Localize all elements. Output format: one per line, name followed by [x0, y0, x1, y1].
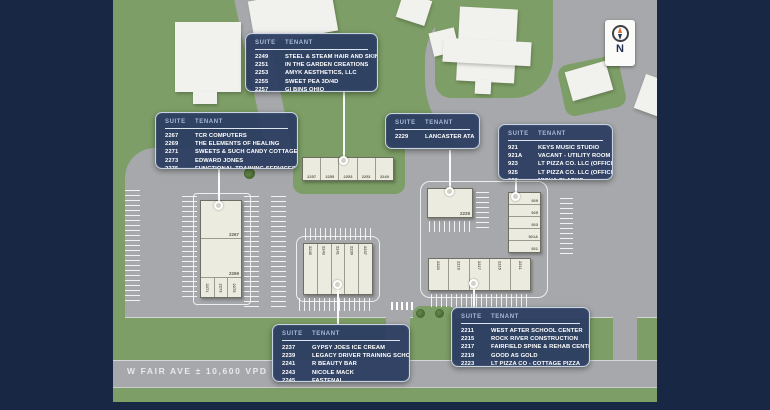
unit-label: 923	[531, 222, 538, 227]
callout-south-east-retail: SUITETENANT 2211WEST AFTER SCHOOL CENTER…	[451, 307, 590, 367]
unit-label: 2271	[205, 283, 210, 292]
building-south-strip: 2223 2219 2217 2215 2211	[428, 258, 531, 291]
unit-2269: 2269	[201, 239, 241, 278]
tenant-name: GI BINS OHIO	[285, 86, 368, 92]
driveway-east	[613, 300, 637, 362]
tenant-name: STEEL & STEAM HAIR AND SKIN	[285, 53, 378, 61]
tenant-name: R BEAUTY BAR	[312, 360, 400, 368]
suite-number: 2253	[255, 69, 285, 77]
unit-label: 2217	[477, 261, 482, 270]
tenant-row: 2271SWEETS & SUCH CANDY COTTAGE	[156, 148, 297, 156]
compass-letter: N	[616, 43, 624, 55]
site-plan-map: 2267 2269 2271 2273 2275 2257 2255 2253 …	[113, 0, 657, 402]
tenant-row: 921KEYS MUSIC STUDIO	[499, 144, 612, 152]
unit-2255: 2255	[321, 158, 339, 180]
unit-2243: 2243	[318, 244, 332, 294]
divider	[395, 129, 470, 130]
tree-icon	[244, 168, 255, 179]
tenant-name: AMYK AESTHETICS, LLC	[285, 69, 368, 77]
tenant-name: EDWARD JONES	[195, 157, 288, 165]
suite-number: 2243	[282, 369, 312, 377]
tenant-row: 2219GOOD AS GOLD	[452, 352, 589, 360]
tenant-name: THE ELEMENTS OF HEALING	[195, 140, 288, 148]
tenant-name: KEYS MUSIC STUDIO	[538, 144, 603, 152]
leader-marker-icon	[511, 192, 520, 201]
suite-header: SUITE	[395, 120, 425, 126]
parking-stalls	[560, 198, 573, 258]
tenant-name: FUNCTIONAL TRAINING SERVICES	[195, 165, 296, 169]
suite-number: 2237	[282, 344, 312, 352]
tenant-name: TCR COMPUTERS	[195, 132, 288, 140]
tenant-name: LT PIZZA CO. LLC (OFFICE)	[538, 169, 613, 177]
tenant-row: 2257GI BINS OHIO	[246, 86, 377, 92]
tenant-row: 2241R BEAUTY BAR	[273, 360, 409, 368]
tenant-row: 2251IN THE GARDEN CREATIONS	[246, 61, 377, 69]
unit-label: 929	[531, 198, 538, 203]
tenant-name: LT PIZZA CO. LLC (OFFICE)	[538, 160, 613, 168]
divider	[282, 340, 400, 341]
tenant-row: 2273EDWARD JONES	[156, 157, 297, 165]
unit-921: 921	[509, 241, 540, 252]
tenant-row: 2269THE ELEMENTS OF HEALING	[156, 140, 297, 148]
suite-number: 2219	[461, 352, 491, 360]
tenant-name: LANCASTER ATA	[425, 133, 475, 141]
suite-header: SUITE	[508, 131, 538, 137]
unit-2215: 2215	[490, 259, 510, 290]
tenant-header: TENANT	[285, 40, 368, 46]
suite-number: 2215	[461, 335, 491, 343]
tree-icon	[416, 309, 425, 318]
unit-label: 2275	[232, 283, 237, 292]
unit-label: 2237	[363, 246, 368, 255]
tenant-header: TENANT	[425, 120, 470, 126]
suite-number: 2245	[282, 377, 312, 382]
unit-2249: 2249	[376, 158, 393, 180]
unit-2211: 2211	[511, 259, 530, 290]
compass-needle-south	[618, 34, 622, 40]
parking-stalls	[271, 196, 286, 308]
crosswalk	[391, 302, 413, 310]
tenant-row: 2249STEEL & STEAM HAIR AND SKIN	[246, 53, 377, 61]
tenant-name: FASTENAL	[312, 377, 400, 382]
church-wing	[442, 38, 531, 67]
callout-header: SUITETENANT	[246, 34, 377, 48]
suite-header: SUITE	[165, 119, 195, 125]
tenant-header: TENANT	[491, 314, 580, 320]
unit-2275: 2275	[228, 278, 241, 297]
tenant-name: NICOLE MACK	[312, 369, 400, 377]
callout-north-retail: SUITETENANT 2249STEEL & STEAM HAIR AND S…	[245, 33, 378, 92]
suite-number: 2255	[255, 78, 285, 86]
callout-header: SUITETENANT	[499, 125, 612, 139]
leader-line	[337, 289, 339, 324]
tenant-name: GYPSY JOES ICE CREAM	[312, 344, 400, 352]
leader-line	[449, 150, 451, 189]
tenant-row: 929MISHA CLARKE	[499, 177, 612, 180]
leader-marker-icon	[214, 201, 223, 210]
tenant-name: SWEETS & SUCH CANDY COTTAGE	[195, 148, 298, 156]
unit-label: 2239	[349, 246, 354, 255]
tenant-name: VACANT - UTILITY ROOM	[538, 152, 610, 160]
callout-west-retail: SUITETENANT 2267TCR COMPUTERS 2269THE EL…	[155, 112, 298, 169]
house-building	[175, 22, 241, 92]
suite-number: 2273	[165, 157, 195, 165]
callout-header: SUITETENANT	[386, 114, 479, 128]
tenant-name: IN THE GARDEN CREATIONS	[285, 61, 368, 69]
leader-line	[473, 288, 475, 307]
building-west: 2267 2269 2271 2273 2275	[200, 200, 242, 298]
unit-2273: 2273	[215, 278, 229, 297]
suite-number: 923	[508, 160, 538, 168]
unit-2223: 2223	[429, 259, 449, 290]
unit-2219: 2219	[449, 259, 469, 290]
suite-number: 2275	[165, 165, 195, 169]
tenant-name: GOOD AS GOLD	[491, 352, 580, 360]
unit-label: 2257	[303, 174, 320, 179]
house-building	[396, 0, 433, 26]
suite-number: 925	[508, 169, 538, 177]
tenant-row: 2223LT PIZZA CO - COTTAGE PIZZA	[452, 360, 589, 367]
suite-number: 2239	[282, 352, 312, 360]
site-plan-frame: 2267 2269 2271 2273 2275 2257 2255 2253 …	[0, 0, 770, 410]
suite-number: 929	[508, 177, 538, 180]
unit-921A: 921A	[509, 229, 540, 241]
unit-label: 921A	[528, 234, 538, 239]
unit-label: 2273	[219, 283, 224, 292]
compass-needle-north	[618, 27, 622, 33]
unit-label: 2241	[335, 246, 340, 255]
unit-2245: 2245	[304, 244, 318, 294]
unit-2257: 2257	[303, 158, 321, 180]
divider	[461, 323, 580, 324]
tenant-row: 925LT PIZZA CO. LLC (OFFICE)	[499, 169, 612, 177]
suite-number: 2251	[255, 61, 285, 69]
tenant-row: 2243NICOLE MACK	[273, 369, 409, 377]
suite-number: 2229	[395, 133, 425, 141]
suite-header: SUITE	[461, 314, 491, 320]
unit-label: 921	[531, 246, 538, 251]
suite-number: 921A	[508, 152, 538, 160]
suite-number: 921	[508, 144, 538, 152]
units-small-row: 2271 2273 2275	[201, 278, 241, 297]
tenant-row: 2237GYPSY JOES ICE CREAM	[273, 344, 409, 352]
suite-number: 2269	[165, 140, 195, 148]
house-building	[193, 92, 217, 104]
unit-label: 2253	[339, 174, 356, 179]
callout-header: SUITETENANT	[273, 325, 409, 339]
building-east-strip: 929 925 923 921A 921	[508, 192, 541, 253]
suite-number: 2271	[165, 148, 195, 156]
unit-label: 2243	[322, 246, 327, 255]
suite-number: 2257	[255, 86, 285, 92]
unit-2251: 2251	[358, 158, 376, 180]
leader-marker-icon	[339, 156, 348, 165]
suite-header: SUITE	[255, 40, 285, 46]
suite-number: 2217	[461, 343, 491, 351]
suite-number: 2211	[461, 327, 491, 335]
tenant-row: 2245FASTENAL	[273, 377, 409, 382]
leader-marker-icon	[469, 279, 478, 288]
tenant-name: FAIRFIELD SPINE & REHAB CENTER	[491, 343, 590, 351]
unit-925: 925	[509, 205, 540, 217]
callout-south-center-retail: SUITETENANT 2237GYPSY JOES ICE CREAM 223…	[272, 324, 410, 382]
tenant-header: TENANT	[538, 131, 603, 137]
leader-line	[218, 169, 220, 203]
tenant-row: 2275FUNCTIONAL TRAINING SERVICES	[156, 165, 297, 169]
suite-header: SUITE	[282, 331, 312, 337]
tenant-row: 921AVACANT - UTILITY ROOM	[499, 152, 612, 160]
unit-label: 2211	[518, 261, 523, 270]
tenant-name: MISHA CLARKE	[538, 177, 603, 180]
tenant-header: TENANT	[312, 331, 400, 337]
unit-label: 2267	[229, 232, 239, 237]
tenant-row: 2217FAIRFIELD SPINE & REHAB CENTER	[452, 343, 589, 351]
tenant-row: 923LT PIZZA CO. LLC (OFFICE)	[499, 160, 612, 168]
suite-number: 2249	[255, 53, 285, 61]
unit-label: 2269	[229, 271, 239, 276]
unit-label: 2255	[321, 174, 338, 179]
unit-2237: 2237	[359, 244, 372, 294]
divider	[508, 140, 603, 141]
unit-label: 2229	[460, 211, 470, 216]
unit-label: 925	[531, 210, 538, 215]
callout-east-retail: SUITETENANT 921KEYS MUSIC STUDIO 921AVAC…	[498, 124, 613, 180]
divider	[165, 128, 288, 129]
tenant-row: 2239LEGACY DRIVER TRAINING SCHOOL	[273, 352, 409, 360]
tenant-row: 2253AMYK AESTHETICS, LLC	[246, 69, 377, 77]
unit-2271: 2271	[201, 278, 215, 297]
divider	[255, 49, 368, 50]
building-north-strip: 2257 2255 2253 2251 2249	[302, 157, 394, 181]
unit-label: 2251	[358, 174, 375, 179]
compass-ring-icon	[612, 25, 629, 42]
callout-center-single: SUITETENANT 2229LANCASTER ATA	[385, 113, 480, 149]
unit-label: 2223	[436, 261, 441, 270]
leader-marker-icon	[333, 280, 342, 289]
tenant-header: TENANT	[195, 119, 288, 125]
road-label: W FAIR AVE ± 10,600 VPD	[127, 366, 268, 376]
unit-label: 2245	[308, 246, 313, 255]
tenant-row: 2211WEST AFTER SCHOOL CENTER	[452, 327, 589, 335]
callout-header: SUITETENANT	[452, 308, 589, 322]
leader-line	[343, 92, 345, 158]
compass-north-icon: N	[605, 20, 635, 66]
tenant-row: 2215ROCK RIVER CONSTRUCTION	[452, 335, 589, 343]
tenant-name: WEST AFTER SCHOOL CENTER	[491, 327, 583, 335]
tenant-row: 2229LANCASTER ATA	[386, 133, 479, 141]
tenant-name: LEGACY DRIVER TRAINING SCHOOL	[312, 352, 410, 360]
suite-number: 2267	[165, 132, 195, 140]
leader-marker-icon	[445, 187, 454, 196]
unit-2239: 2239	[345, 244, 359, 294]
tree-icon	[435, 309, 444, 318]
tenant-row: 2267TCR COMPUTERS	[156, 132, 297, 140]
tenant-name: LT PIZZA CO - COTTAGE PIZZA	[491, 360, 580, 367]
unit-label: 2215	[497, 261, 502, 270]
callout-header: SUITETENANT	[156, 113, 297, 127]
tenant-name: SWEET PEA 3D/4D	[285, 78, 368, 86]
unit-923: 923	[509, 217, 540, 229]
suite-number: 2241	[282, 360, 312, 368]
tenant-name: ROCK RIVER CONSTRUCTION	[491, 335, 580, 343]
church-annex	[475, 80, 492, 95]
unit-label: 2249	[376, 174, 393, 179]
suite-number: 2223	[461, 360, 491, 367]
tenant-row: 2255SWEET PEA 3D/4D	[246, 78, 377, 86]
unit-label: 2219	[457, 261, 462, 270]
parking-stalls	[125, 190, 140, 302]
